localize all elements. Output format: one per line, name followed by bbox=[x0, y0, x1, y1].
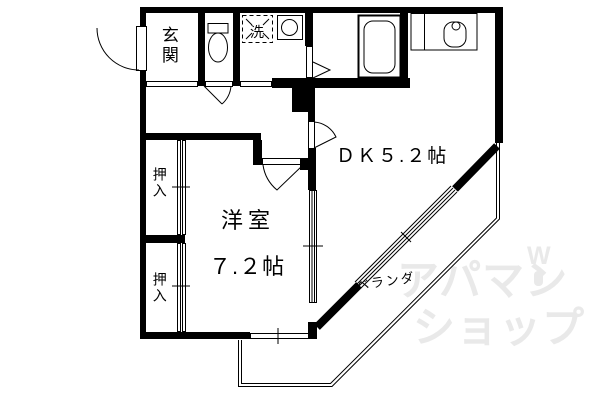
wall-diagonal-lower bbox=[317, 285, 359, 327]
floorplan-image: アパマン ショップ W bbox=[0, 0, 600, 400]
wall-left-upper bbox=[140, 7, 146, 27]
dk-door-arc bbox=[314, 122, 336, 148]
toilet-threshold bbox=[206, 82, 233, 87]
wall-bottom bbox=[140, 332, 250, 339]
laundry-label: 洗 bbox=[250, 22, 264, 42]
wall-hall-block bbox=[292, 85, 315, 112]
genkan-step-line bbox=[147, 82, 198, 87]
dk-door-leaf bbox=[309, 122, 315, 149]
dk-label: ＤＫ５.２帖 bbox=[336, 141, 448, 168]
entrance-door-leaf bbox=[137, 27, 147, 71]
fixtures bbox=[208, 14, 477, 78]
western-room-size-label: ７.２帖 bbox=[209, 249, 285, 281]
toilet-door-arc bbox=[222, 86, 231, 104]
closet-door-line-d bbox=[183, 244, 186, 332]
bathroom-door-icon bbox=[307, 47, 331, 79]
closet-upper-label: 押入 bbox=[152, 167, 167, 199]
dk-door-icon bbox=[309, 122, 337, 149]
room-door-threshold bbox=[263, 159, 303, 165]
wall-toilet-laundry bbox=[233, 13, 240, 86]
laundry-threshold bbox=[241, 82, 272, 87]
floorplan-drawing bbox=[0, 0, 600, 400]
bathtub-inner bbox=[364, 21, 395, 73]
kitchen-faucet bbox=[452, 22, 460, 30]
wall-room-top bbox=[140, 133, 261, 140]
toilet-door-icon bbox=[204, 86, 231, 104]
wall-left-lower bbox=[140, 70, 146, 338]
wall-laundry-bath bbox=[305, 13, 313, 46]
toilet-door-leaf bbox=[204, 86, 222, 104]
toilet-tank bbox=[208, 24, 228, 34]
window-tick-diagonal bbox=[401, 232, 411, 242]
washbasin-bowl bbox=[282, 20, 298, 36]
bathroom-door-leaf bbox=[307, 47, 313, 78]
wall-genkan-toilet bbox=[198, 13, 205, 86]
western-room-label: 洋室 bbox=[221, 203, 275, 235]
kitchen-sink-basin bbox=[444, 22, 466, 47]
bathtub-icon bbox=[359, 16, 401, 78]
window-room-bottom bbox=[251, 334, 309, 339]
kitchen-sink-icon bbox=[411, 14, 477, 51]
closet-lower-label: 押入 bbox=[152, 272, 167, 304]
toilet-icon bbox=[208, 24, 228, 63]
wall-diagonal-upper bbox=[455, 146, 497, 189]
wall-room-top-step bbox=[253, 140, 262, 165]
wall-top bbox=[140, 7, 503, 13]
room-door-arc bbox=[263, 165, 303, 190]
entrance-door-arc bbox=[97, 28, 139, 70]
thresholds bbox=[147, 82, 303, 165]
closet-door-line-c bbox=[178, 244, 181, 332]
washbasin-icon bbox=[278, 16, 303, 40]
wall-right bbox=[495, 7, 503, 143]
wall-closet-divider bbox=[140, 235, 185, 243]
walls-diagonal bbox=[317, 146, 497, 327]
entrance-door-icon bbox=[97, 27, 147, 71]
genkan-label: 玄関 bbox=[159, 26, 177, 66]
toilet-bowl bbox=[209, 33, 228, 62]
walls bbox=[140, 7, 503, 339]
bathroom-door-swing bbox=[313, 62, 330, 78]
